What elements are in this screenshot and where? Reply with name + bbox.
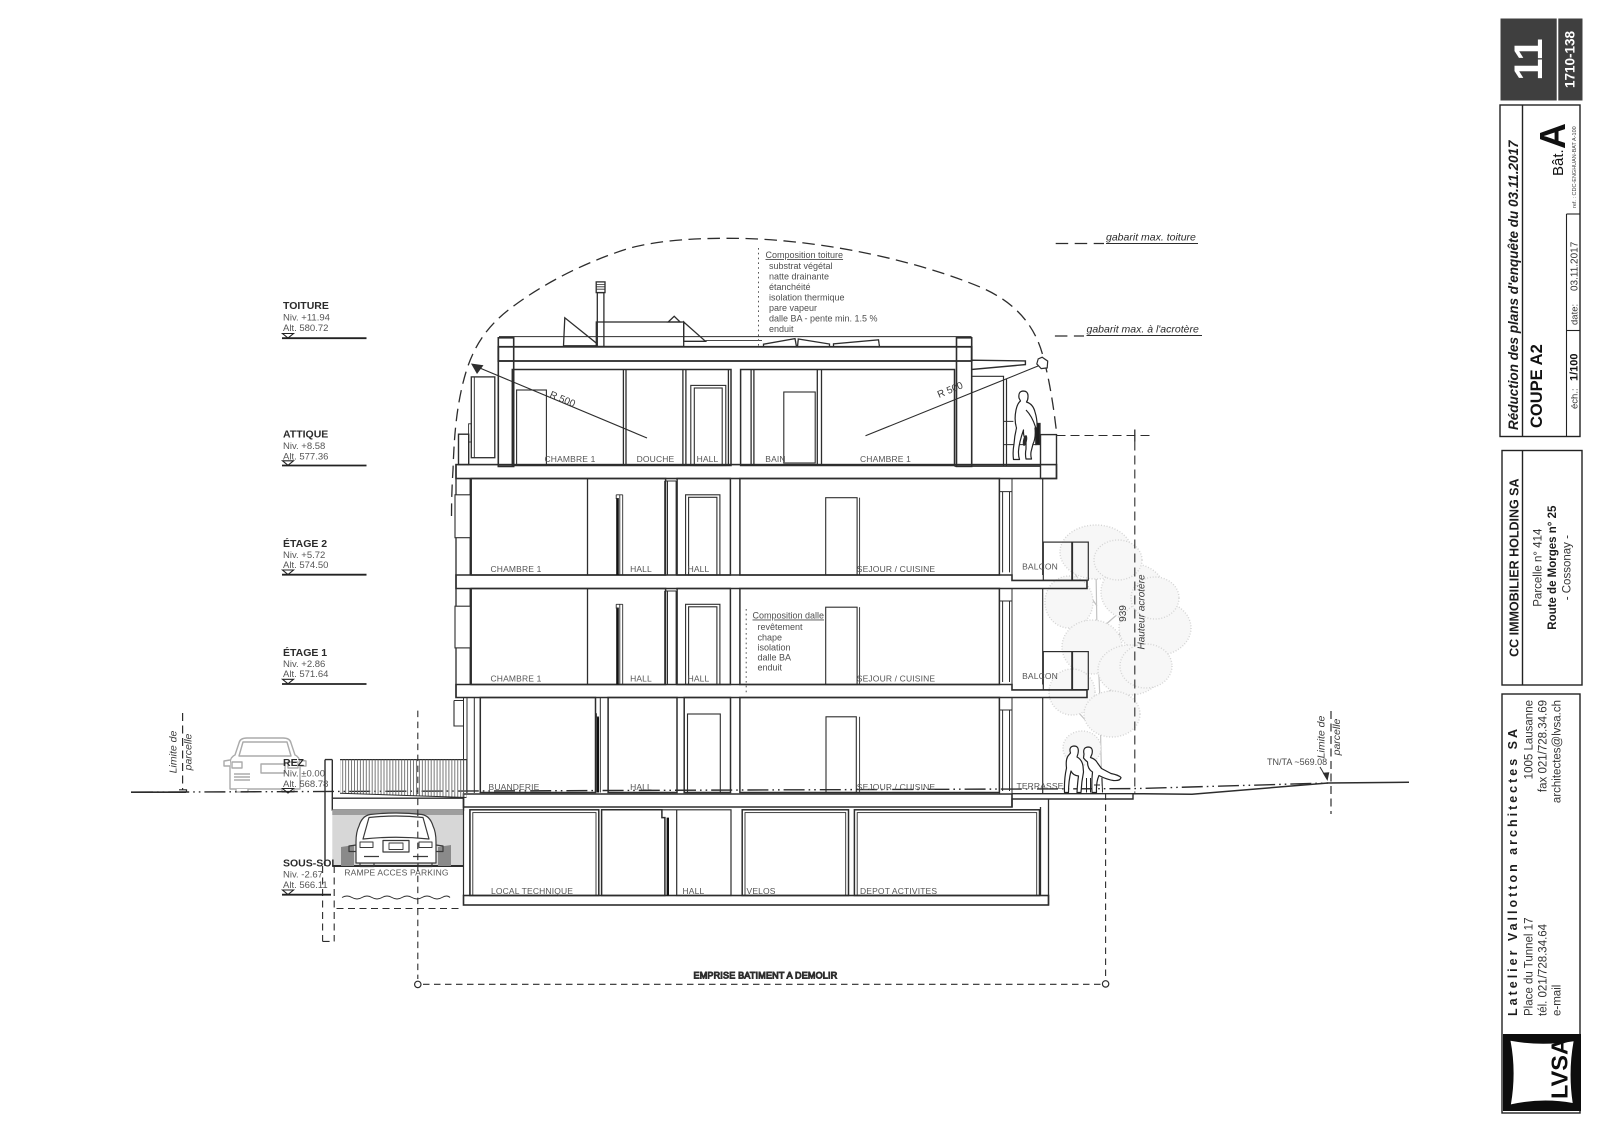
svg-text:Bât.: Bât. [1550,149,1567,176]
svg-text:EMPRISE BATIMENT A DEMOLIR: EMPRISE BATIMENT A DEMOLIR [694,971,838,981]
svg-text:HALL: HALL [688,564,710,574]
svg-text:CHAMBRE 1: CHAMBRE 1 [491,674,542,684]
svg-text:Parcelle n° 414: Parcelle n° 414 [1533,528,1545,607]
svg-text:CHAMBRE 1: CHAMBRE 1 [545,454,596,464]
svg-text:date:: date: [1570,304,1581,325]
svg-text:REZ: REZ [283,757,305,769]
svg-text:isolation: isolation [758,643,791,653]
svg-text:enduit: enduit [769,324,794,334]
svg-text:A: A [1532,123,1573,149]
svg-text:TOITURE: TOITURE [283,300,329,312]
svg-text:architectes@lvsa.ch: architectes@lvsa.ch [1552,700,1564,803]
svg-text:HALL: HALL [688,674,710,684]
svg-text:fax 021/728.34.69: fax 021/728.34.69 [1538,700,1550,792]
svg-text:BALCON: BALCON [1022,562,1058,572]
svg-text:substrat végétal: substrat végétal [769,261,833,271]
svg-text:HALL: HALL [630,674,652,684]
svg-text:étanchéité: étanchéité [769,282,811,292]
svg-text:COUPE A2: COUPE A2 [1528,344,1546,428]
svg-text:ÉTAGE 2: ÉTAGE 2 [283,537,327,550]
svg-text:SEJOUR / CUISINE: SEJOUR / CUISINE [857,782,936,792]
svg-text:natte drainante: natte drainante [769,272,829,282]
svg-text:Alt. 574.50: Alt. 574.50 [283,560,328,571]
svg-text:1/100: 1/100 [1569,353,1581,381]
svg-text:Niv. +11.94: Niv. +11.94 [283,313,330,324]
svg-text:Niv. -2.67: Niv. -2.67 [283,870,323,881]
svg-text:éch.:: éch.: [1570,388,1581,409]
svg-text:Alt. 566.11: Alt. 566.11 [283,880,328,891]
svg-text:revêtement: revêtement [758,622,804,632]
svg-text:TN/TA ~569.08: TN/TA ~569.08 [1267,757,1327,767]
svg-text:939: 939 [1118,605,1129,622]
svg-text:dalle BA - pente min. 1.5 %: dalle BA - pente min. 1.5 % [769,314,878,324]
svg-text:dalle BA: dalle BA [758,653,792,663]
svg-text:Niv. ±0.00: Niv. ±0.00 [283,769,325,780]
svg-text:DOUCHE: DOUCHE [637,454,675,464]
svg-text:VELOS: VELOS [747,886,776,896]
svg-text:chape: chape [758,633,783,643]
svg-text:Limite de: Limite de [168,731,180,774]
svg-text:Composition dalle: Composition dalle [753,611,825,621]
svg-text:CC IMMOBILIER HOLDING SA: CC IMMOBILIER HOLDING SA [1508,478,1522,656]
svg-text:LVSA: LVSA [1547,1038,1573,1099]
svg-text:Place du Tunnel 17: Place du Tunnel 17 [1524,918,1536,1016]
svg-text:parcelle: parcelle [183,733,195,771]
svg-text:HALL: HALL [630,564,652,574]
svg-text:enduit: enduit [758,663,783,673]
svg-text:Alt. 580.72: Alt. 580.72 [283,323,328,334]
svg-text:HALL: HALL [630,782,652,792]
svg-text:- Cossonay -: - Cossonay - [1562,535,1574,600]
svg-text:Composition toiture: Composition toiture [766,250,844,260]
svg-text:BAIN: BAIN [765,454,785,464]
svg-text:1710-138: 1710-138 [1563,30,1578,88]
svg-text:03.11.2017: 03.11.2017 [1570,241,1581,291]
svg-text:ÉTAGE 1: ÉTAGE 1 [283,646,327,659]
svg-text:Hauteur acrotère: Hauteur acrotère [1137,574,1148,649]
svg-text:Limite de: Limite de [1316,716,1328,759]
svg-text:isolation thermique: isolation thermique [769,293,845,303]
svg-text:BUANDERIE: BUANDERIE [489,782,540,792]
svg-text:BALCON: BALCON [1022,671,1058,681]
svg-text:parcelle: parcelle [1331,718,1343,756]
svg-text:gabarit max. toiture: gabarit max. toiture [1106,232,1196,244]
svg-text:Niv. +8.58: Niv. +8.58 [283,441,325,452]
svg-text:DEPOT ACTIVITES: DEPOT ACTIVITES [860,886,937,896]
svg-text:Réduction des plans d'enquête: Réduction des plans d'enquête du 03.11.2… [1506,139,1521,430]
svg-text:SEJOUR / CUISINE: SEJOUR / CUISINE [857,674,936,684]
svg-text:SEJOUR / CUISINE: SEJOUR / CUISINE [857,564,936,574]
svg-text:TERRASSE: TERRASSE [1016,781,1063,791]
svg-text:RAMPE ACCES PARKING: RAMPE ACCES PARKING [344,868,448,878]
svg-text:LOCAL TECHNIQUE: LOCAL TECHNIQUE [491,886,573,896]
svg-text:CHAMBRE 1: CHAMBRE 1 [491,564,542,574]
svg-text:HALL: HALL [683,886,705,896]
svg-text:e-mail: e-mail [1552,985,1564,1016]
svg-text:Alt. 571.64: Alt. 571.64 [283,669,328,680]
svg-text:HALL: HALL [697,454,719,464]
svg-text:CHAMBRE 1: CHAMBRE 1 [860,454,911,464]
svg-text:gabarit max. à l'acrotère: gabarit max. à l'acrotère [1087,324,1199,336]
svg-text:ref. : CDC-ENGHUAN-BAT A-100: ref. : CDC-ENGHUAN-BAT A-100 [1572,126,1578,208]
svg-text:1005 Lausanne: 1005 Lausanne [1524,700,1536,779]
svg-text:SOUS-SOL: SOUS-SOL [283,858,338,870]
svg-text:R 500: R 500 [548,390,577,411]
svg-text:ATTIQUE: ATTIQUE [283,429,328,441]
svg-text:11: 11 [1507,38,1551,80]
svg-text:Route de Morges n° 25: Route de Morges n° 25 [1547,505,1559,630]
svg-text:tél. 021/728.34.64: tél. 021/728.34.64 [1538,923,1550,1016]
svg-text:pare vapeur: pare vapeur [769,303,817,313]
svg-text:Latelier Vallotton architectes: Latelier Vallotton architectes SA [1506,726,1520,1016]
